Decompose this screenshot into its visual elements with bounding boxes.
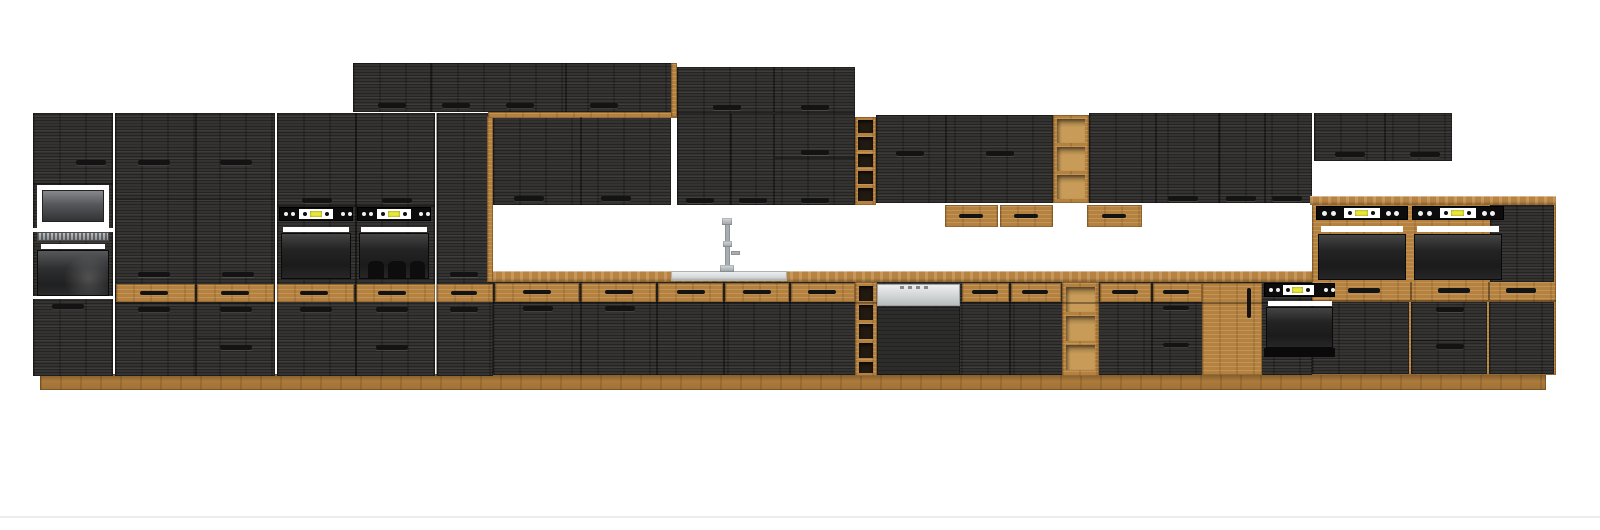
knob bbox=[1394, 211, 1399, 216]
display-window bbox=[1292, 287, 1303, 293]
door-gap bbox=[1155, 113, 1157, 203]
knob bbox=[419, 212, 423, 216]
oven-base-strip bbox=[1264, 348, 1335, 357]
box-handle bbox=[1102, 214, 1126, 218]
oven-glass bbox=[281, 233, 351, 279]
drawer-handle bbox=[523, 290, 551, 294]
door-gap bbox=[773, 114, 775, 205]
drawer-handle bbox=[1112, 290, 1138, 294]
door-handle bbox=[686, 198, 714, 203]
door-handle bbox=[605, 306, 635, 311]
wall-cabinets-right bbox=[1089, 113, 1312, 203]
faucet-base bbox=[720, 265, 734, 272]
door-gap bbox=[677, 112, 855, 114]
drawer-handle bbox=[1438, 288, 1470, 293]
drawer-handle bbox=[1506, 288, 1536, 293]
shelf-opening bbox=[1057, 147, 1085, 171]
oven-handle-bar bbox=[41, 244, 105, 249]
button bbox=[325, 212, 329, 216]
button bbox=[1371, 211, 1375, 215]
drawer-handle bbox=[376, 345, 408, 350]
knob bbox=[341, 212, 345, 216]
door-handle bbox=[52, 304, 84, 309]
door-handle bbox=[382, 198, 412, 203]
door-gap bbox=[115, 302, 275, 304]
hanging-wall-cabinets bbox=[493, 117, 671, 205]
drawer-handle bbox=[1163, 343, 1189, 347]
shelf-opening bbox=[1066, 287, 1095, 312]
drawer-handle bbox=[140, 291, 168, 295]
oven-handle-bar bbox=[283, 227, 349, 232]
drawer-handle bbox=[451, 291, 477, 295]
door-gap bbox=[195, 113, 197, 376]
door-gap bbox=[1488, 282, 1490, 300]
door-handle bbox=[442, 103, 470, 108]
button bbox=[1348, 211, 1352, 215]
door-handle bbox=[739, 198, 767, 203]
door-handle bbox=[590, 103, 618, 108]
drawer-handle bbox=[1022, 290, 1048, 294]
door-handle bbox=[1226, 196, 1256, 201]
door-handle bbox=[220, 307, 252, 312]
door-gap bbox=[197, 338, 275, 339]
tall-unit-drawer-stack bbox=[1411, 302, 1487, 374]
unit-worktop bbox=[1310, 196, 1556, 205]
door-handle bbox=[1272, 196, 1302, 201]
door-gap bbox=[1384, 113, 1386, 161]
door-gap bbox=[580, 282, 582, 375]
shelf-opening bbox=[859, 286, 873, 301]
oven-glass bbox=[1266, 307, 1333, 348]
oak-base-door bbox=[1202, 283, 1262, 375]
tall-pantry bbox=[437, 113, 493, 376]
door-gap bbox=[1151, 282, 1153, 375]
button bbox=[1286, 288, 1290, 292]
box-handle bbox=[1014, 214, 1038, 218]
door-handle bbox=[523, 306, 553, 311]
button bbox=[1467, 211, 1471, 215]
microwave-screen bbox=[42, 190, 104, 222]
knob bbox=[291, 212, 295, 216]
door-handle bbox=[378, 103, 406, 108]
kitchen-render bbox=[0, 0, 1600, 530]
door-gap bbox=[789, 282, 791, 375]
door-handle bbox=[801, 150, 829, 155]
door-handle bbox=[1410, 152, 1440, 157]
door-handle bbox=[896, 151, 924, 156]
wall-cabinets-mid bbox=[876, 115, 1053, 203]
door-gap bbox=[1009, 282, 1011, 375]
oven-handle-bar bbox=[1268, 301, 1332, 306]
knob bbox=[369, 212, 373, 216]
bakeware-silhouette bbox=[368, 261, 384, 278]
knob bbox=[1269, 288, 1273, 292]
knob bbox=[1322, 211, 1327, 216]
door-handle bbox=[450, 272, 478, 277]
door-handle bbox=[300, 307, 332, 312]
door-gap bbox=[1264, 113, 1266, 203]
shelf-opening bbox=[859, 305, 873, 320]
shelf-opening bbox=[1066, 316, 1095, 341]
drawer-handle bbox=[378, 291, 406, 295]
dishwasher-buttons bbox=[900, 286, 930, 289]
display-window bbox=[310, 211, 322, 217]
drawer-handle bbox=[220, 345, 252, 350]
shelf-opening bbox=[859, 362, 873, 373]
door-handle bbox=[222, 272, 254, 277]
button bbox=[403, 212, 407, 216]
shelf-opening bbox=[1057, 119, 1085, 143]
door-gap bbox=[773, 67, 775, 112]
plinth bbox=[40, 374, 1546, 390]
knob bbox=[1418, 211, 1423, 216]
door-gap bbox=[115, 199, 275, 200]
door-handle bbox=[801, 198, 829, 203]
drawer-handle bbox=[1163, 290, 1189, 294]
countertop bbox=[493, 271, 1312, 282]
knob bbox=[1490, 211, 1495, 216]
drawer-handle bbox=[1436, 344, 1464, 349]
knob bbox=[362, 212, 366, 216]
knob bbox=[1427, 211, 1432, 216]
shelf-opening bbox=[859, 324, 873, 339]
door-handle bbox=[801, 105, 829, 110]
door-handle bbox=[986, 151, 1014, 156]
door-gap bbox=[580, 117, 582, 205]
button bbox=[303, 212, 307, 216]
drawer-handle bbox=[677, 290, 705, 294]
knob bbox=[426, 212, 430, 216]
door-gap bbox=[723, 282, 725, 375]
door-handle bbox=[220, 160, 252, 165]
door-gap bbox=[1411, 340, 1487, 341]
knob bbox=[348, 212, 352, 216]
oven-handle-bar bbox=[1321, 226, 1403, 232]
box-handle bbox=[959, 214, 983, 218]
button bbox=[1444, 211, 1448, 215]
door-gap bbox=[436, 113, 437, 376]
display-window bbox=[1355, 210, 1368, 216]
display-window bbox=[1451, 210, 1464, 216]
shelf-opening bbox=[1057, 175, 1085, 199]
drawer-handle bbox=[1348, 288, 1380, 293]
knob bbox=[1324, 288, 1328, 292]
door-gap bbox=[945, 115, 947, 203]
shelf-opening bbox=[858, 120, 873, 133]
door-handle bbox=[138, 160, 170, 165]
knob bbox=[1331, 288, 1335, 292]
knob bbox=[284, 212, 288, 216]
drawer-handle bbox=[972, 290, 998, 294]
oven-glass bbox=[1318, 234, 1406, 280]
drawer-handle bbox=[1436, 307, 1464, 312]
door-handle bbox=[713, 105, 741, 110]
drawer-handle bbox=[743, 290, 771, 294]
door-gap bbox=[430, 63, 432, 112]
shelf-opening bbox=[858, 137, 873, 150]
drawer-handle bbox=[221, 291, 249, 295]
shelf-opening bbox=[858, 154, 873, 167]
knob bbox=[1276, 288, 1280, 292]
bakeware-silhouette bbox=[388, 261, 406, 278]
vertical-door-handle bbox=[1247, 288, 1251, 318]
tall-unit-lower-door bbox=[1489, 302, 1554, 374]
door-gap bbox=[1218, 113, 1220, 203]
door-handle bbox=[138, 272, 170, 277]
knob bbox=[1386, 211, 1391, 216]
button bbox=[1306, 288, 1310, 292]
door-handle bbox=[302, 198, 332, 203]
shelf-opening bbox=[1066, 345, 1095, 370]
door-handle bbox=[506, 103, 534, 108]
door-gap bbox=[565, 63, 567, 112]
floor-line bbox=[0, 516, 1600, 518]
door-handle bbox=[601, 196, 631, 201]
oak-side-panel bbox=[487, 117, 493, 282]
oven-handle-bar bbox=[1417, 226, 1499, 232]
oak-frame-top bbox=[488, 112, 677, 118]
door-handle bbox=[76, 160, 106, 165]
door-gap bbox=[355, 113, 357, 376]
knob bbox=[1482, 211, 1487, 216]
appliance-separator bbox=[33, 296, 113, 299]
drawer-handle bbox=[1163, 306, 1189, 310]
door-gap bbox=[1410, 282, 1412, 300]
faucet-lever bbox=[731, 251, 740, 255]
drawer-handle bbox=[605, 290, 633, 294]
faucet-joint bbox=[723, 241, 732, 247]
door-gap bbox=[656, 282, 658, 375]
wall-cabinet-block bbox=[677, 67, 855, 205]
oak-frame-edge bbox=[671, 63, 677, 117]
faucet-head bbox=[722, 218, 732, 225]
oven-glass bbox=[1414, 234, 1502, 280]
sink-rim bbox=[671, 271, 787, 281]
drawer-handle bbox=[300, 291, 328, 295]
knob bbox=[1331, 211, 1336, 216]
button bbox=[381, 212, 385, 216]
shelf-opening bbox=[858, 188, 873, 201]
drawer-handle bbox=[376, 307, 408, 312]
dishwasher-front bbox=[877, 307, 960, 375]
door-handle bbox=[1168, 196, 1198, 201]
shelf-opening bbox=[859, 343, 873, 358]
shelf-opening bbox=[858, 171, 873, 184]
compact-oven-display bbox=[37, 232, 109, 241]
door-handle bbox=[514, 196, 544, 201]
door-handle bbox=[1335, 152, 1365, 157]
door-handle bbox=[450, 307, 478, 312]
oven-handle-bar bbox=[361, 227, 427, 232]
door-gap bbox=[775, 157, 855, 159]
drawer-handle bbox=[808, 290, 836, 294]
door-gap bbox=[730, 114, 732, 205]
display-window bbox=[388, 211, 400, 217]
door-handle bbox=[138, 307, 170, 312]
bakeware-silhouette bbox=[410, 261, 425, 278]
door-gap bbox=[1153, 338, 1202, 339]
oven-glass bbox=[37, 250, 109, 296]
